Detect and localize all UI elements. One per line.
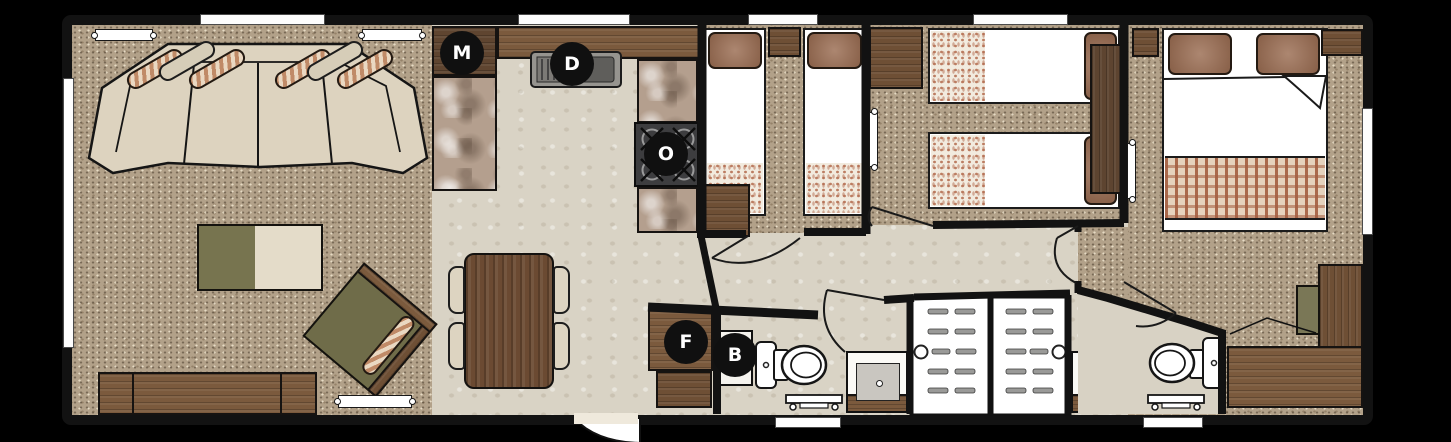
oven-marker-label: O [658,143,674,165]
kitchen-counter-left [432,76,497,191]
window [1362,108,1373,235]
bed-pillow [1256,33,1320,75]
oven-marker: O [644,132,688,176]
dining-chair [553,322,570,370]
dressing-stool [1296,285,1320,335]
bedside-table [1321,29,1363,56]
radiator [338,395,412,408]
coffee-table [197,224,323,291]
ottoman-chest [703,184,750,237]
single-bed-throw [931,31,985,101]
bed-pillow [1168,33,1232,75]
bedside-table [1132,28,1159,57]
wardrobe-run [1227,346,1363,408]
bedside-table [768,27,801,57]
single-bed-throw [806,163,863,213]
window [63,78,74,348]
dining-chair [448,266,465,314]
tv-unit-divider [132,374,134,413]
window [1143,417,1203,428]
single-bed-throw [931,135,985,206]
microwave-marker-label: M [453,42,472,64]
wardrobe [869,27,923,89]
dishwasher-marker-label: D [564,53,580,75]
dressing-unit [1090,44,1124,194]
dishwasher-marker: D [550,42,594,86]
tv-unit-divider [280,374,282,413]
kitchen-counter-top [497,26,703,59]
window [973,14,1068,25]
microwave-marker: M [440,31,484,75]
window [775,417,841,428]
utility-cupboard [656,371,712,408]
wardrobe-tall [1318,264,1363,348]
kitchen-counter-right-upper [637,59,698,123]
radiator [95,29,153,41]
window [748,14,818,25]
dining-chair [553,266,570,314]
floorplan: M D O F B [0,0,1451,442]
radiator [869,112,878,167]
bed-pillow [807,32,862,69]
ensuite-vanity [1071,351,1133,413]
vanity-basin [856,363,900,401]
boiler-marker: B [713,333,757,377]
radiator [362,29,422,41]
vanity-basin [1081,363,1125,401]
kitchen-counter-right-lower [637,187,698,233]
dining-chair [448,322,465,370]
boiler-marker-label: B [728,344,742,366]
bed-pillow [708,32,762,69]
tv-unit [98,372,317,415]
dining-table [464,253,554,389]
window [200,14,325,25]
bathroom-vanity [846,351,908,413]
radiator [1127,143,1136,199]
double-bed-throw [1165,156,1325,220]
entrance-threshold [574,413,638,424]
fridge-marker-label: F [680,331,693,353]
fridge-marker: F [664,320,708,364]
window [518,14,630,25]
